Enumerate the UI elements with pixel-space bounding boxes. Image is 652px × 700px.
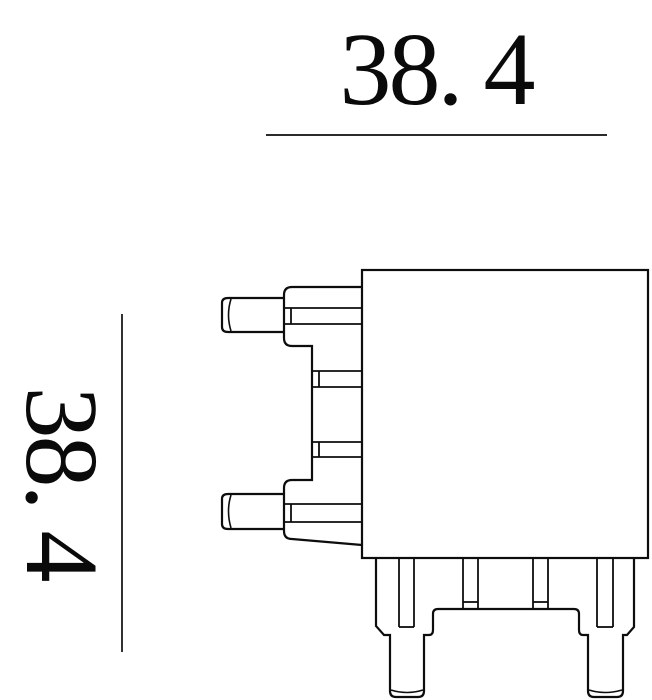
upper-bracket-pin-channel — [284, 308, 362, 324]
horizontal-dimension-label: 38. 4 — [340, 12, 535, 127]
upper-side-pin-tip-arc — [229, 299, 232, 331]
right-foot-terminal-lines — [597, 558, 613, 627]
vertical-dimension-label: 38. 4 — [4, 387, 119, 582]
left-flange-outline — [284, 287, 362, 545]
middle-tab-lower — [312, 442, 362, 457]
technical-drawing-canvas: 38. 4 38. 4 — [0, 0, 652, 700]
drawing-svg: 38. 4 38. 4 — [0, 0, 652, 700]
middle-tab-upper — [312, 371, 362, 387]
right-bottom-pin-tip-arc — [589, 690, 622, 693]
component-body — [362, 270, 648, 558]
lower-side-pin-tip-arc — [229, 495, 232, 528]
lower-bracket-pin-channel — [284, 504, 362, 522]
left-bottom-pin-tip-arc — [391, 690, 423, 693]
upper-side-pin — [222, 298, 284, 332]
horizontal-dimension: 38. 4 — [266, 12, 607, 135]
middle-strut-right — [533, 558, 548, 609]
vertical-dimension: 38. 4 — [4, 314, 122, 652]
lower-side-pin — [222, 494, 284, 529]
middle-strut-left — [463, 558, 478, 609]
left-foot-terminal-lines — [399, 558, 414, 627]
